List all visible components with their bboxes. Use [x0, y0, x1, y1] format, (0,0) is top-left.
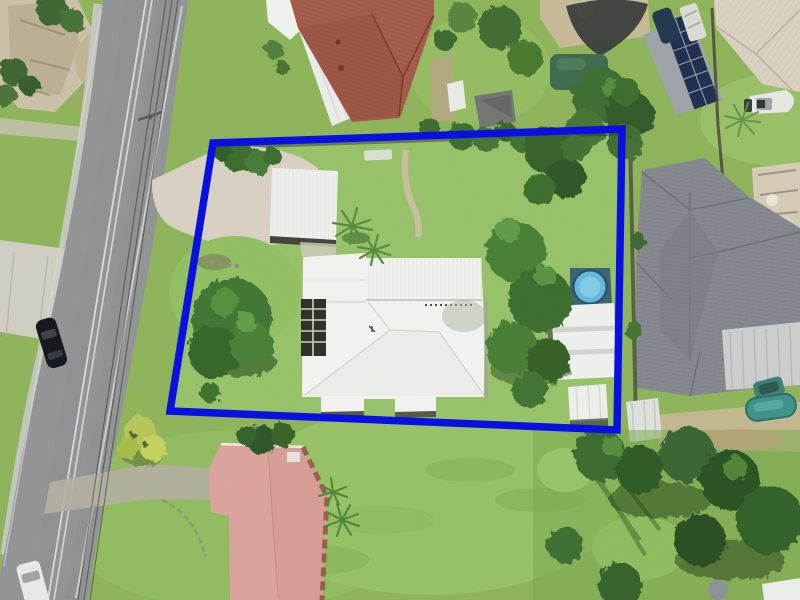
- aerial-photo-stage: [0, 0, 800, 600]
- aerial-photo: [0, 0, 800, 600]
- photo-grain-overlay: [0, 0, 800, 600]
